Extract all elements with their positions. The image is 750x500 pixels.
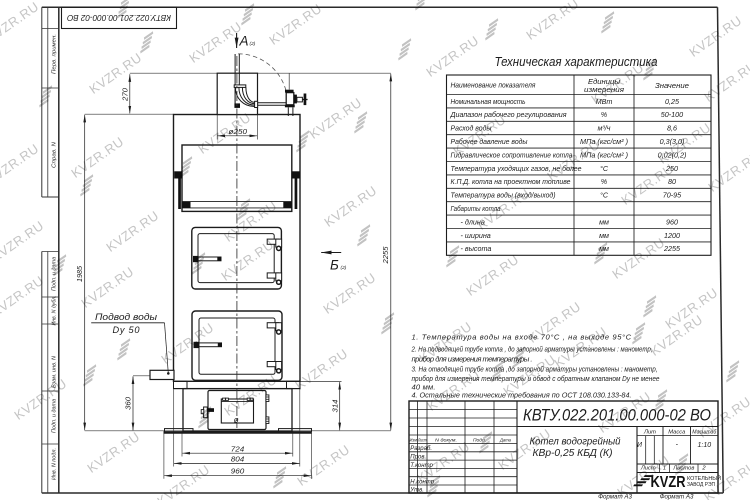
svg-text:960: 960 (231, 469, 245, 476)
svg-text:м³/ч: м³/ч (597, 124, 610, 133)
svg-text:Пров.: Пров. (410, 455, 426, 461)
svg-text:50-100: 50-100 (661, 110, 683, 119)
svg-text:°С: °С (600, 164, 609, 173)
svg-text:2255: 2255 (383, 246, 390, 264)
svg-text:Значение: Значение (655, 81, 689, 90)
svg-text:80: 80 (668, 177, 676, 186)
svg-text:Номинальная мощность: Номинальная мощность (451, 97, 526, 106)
svg-text:724: 724 (231, 446, 245, 453)
svg-text:А: А (239, 34, 249, 49)
svg-text:Dy 50: Dy 50 (113, 325, 141, 335)
svg-text:Лит: Лит (643, 429, 656, 435)
svg-text:Изм: Изм (410, 437, 418, 442)
svg-text:1:10: 1:10 (697, 442, 711, 449)
svg-text:(2): (2) (341, 265, 347, 271)
svg-text:%: % (601, 110, 608, 119)
svg-text:Инв. N дубл.: Инв. N дубл. (51, 296, 57, 326)
svg-text:0,25: 0,25 (665, 97, 680, 106)
svg-text:804: 804 (231, 456, 245, 463)
svg-text:270: 270 (122, 88, 129, 102)
svg-text:(2): (2) (250, 41, 256, 47)
svg-text:Инв. N подл.: Инв. N подл. (51, 448, 57, 480)
svg-text:Лист: Лист (417, 437, 426, 442)
svg-text:Дата: Дата (499, 437, 511, 443)
svg-text:Формат А3: Формат А3 (660, 493, 694, 500)
svg-text:- ширина: - ширина (461, 231, 491, 240)
svg-text:Справ. N: Справ. N (51, 142, 57, 168)
svg-text:Диапазон рабочего регулировани: Диапазон рабочего регулирования (450, 110, 567, 119)
svg-text:Утв.: Утв. (409, 488, 424, 494)
svg-text:314: 314 (332, 399, 339, 412)
svg-text:Перв. примен.: Перв. примен. (51, 34, 57, 74)
svg-text:КВТУ.022.201.00.000-02 ВО: КВТУ.022.201.00.000-02 ВО (67, 13, 171, 23)
svg-text:мм: мм (599, 231, 609, 240)
svg-text:Масса: Масса (668, 429, 686, 435)
svg-text:- высота: - высота (461, 244, 492, 253)
svg-text:мм: мм (599, 217, 609, 226)
svg-text:°С: °С (600, 191, 609, 200)
svg-text:1200: 1200 (664, 231, 680, 240)
svg-text:360: 360 (126, 397, 133, 410)
svg-text:Наименование показателя: Наименование показателя (451, 81, 536, 90)
svg-text:N докум.: N докум. (435, 437, 457, 443)
svg-text:Разраб.: Разраб. (410, 446, 432, 452)
svg-text:Подп. и дата: Подп. и дата (51, 399, 57, 433)
svg-text:КВр-0,25 КБД (К): КВр-0,25 КБД (К) (533, 448, 613, 459)
svg-text:%: % (601, 177, 608, 186)
svg-text:70-95: 70-95 (663, 191, 682, 200)
svg-text:960: 960 (666, 217, 678, 226)
svg-text:ø: ø (234, 416, 239, 425)
svg-text:8,6: 8,6 (667, 124, 677, 133)
svg-text:Температура воды (вход/выход): Температура воды (вход/выход) (451, 191, 556, 200)
svg-text:Подвод воды: Подвод воды (95, 312, 157, 322)
svg-text:КОТЕЛЬНЫЙ: КОТЕЛЬНЫЙ (687, 474, 721, 482)
svg-text:Б: Б (330, 258, 339, 273)
svg-text:1985: 1985 (77, 266, 84, 282)
